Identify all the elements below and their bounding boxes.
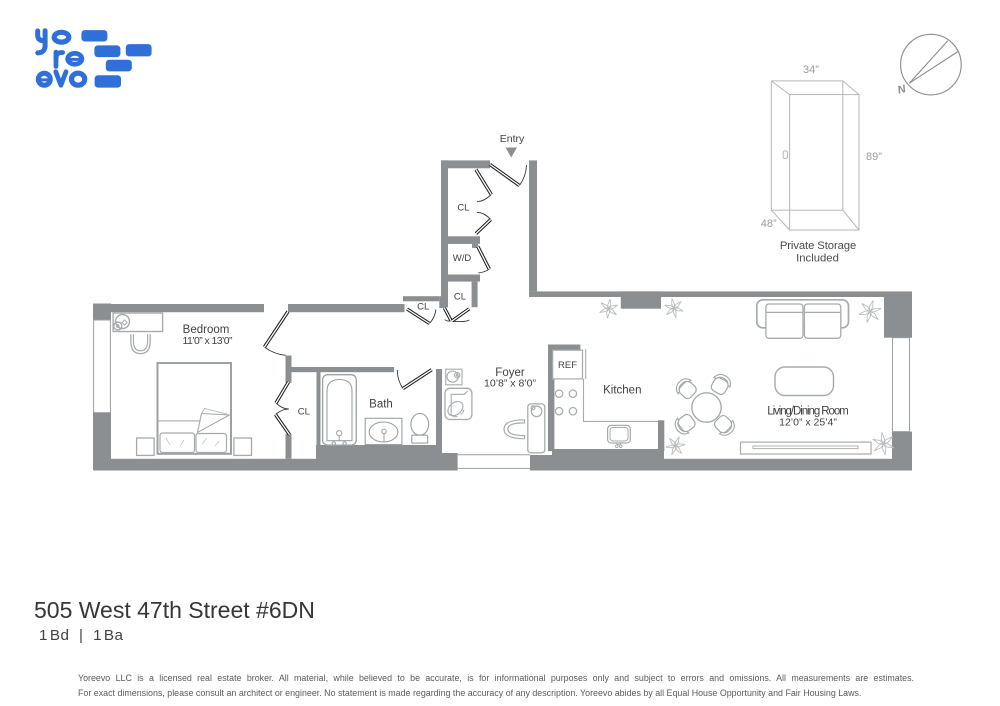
svg-text:Entry: Entry bbox=[500, 133, 525, 145]
svg-text:48”: 48” bbox=[761, 218, 777, 230]
svg-text:W/D: W/D bbox=[453, 253, 472, 264]
svg-text:Bath: Bath bbox=[369, 398, 393, 410]
svg-text:CL: CL bbox=[417, 301, 429, 312]
svg-text:Included: Included bbox=[796, 252, 839, 264]
svg-text:REF: REF bbox=[558, 360, 577, 371]
svg-text:12’0” x 25’4”: 12’0” x 25’4” bbox=[779, 417, 837, 429]
svg-text:11’0” x 13’0”: 11’0” x 13’0” bbox=[183, 335, 234, 347]
svg-text:34”: 34” bbox=[803, 64, 819, 76]
svg-text:CL: CL bbox=[457, 203, 469, 214]
svg-text:N: N bbox=[896, 83, 908, 97]
svg-text:10’8” x 8’0”: 10’8” x 8’0” bbox=[484, 378, 536, 390]
svg-text:Kitchen: Kitchen bbox=[603, 385, 641, 397]
svg-text:Private Storage: Private Storage bbox=[780, 240, 856, 252]
svg-text:89”: 89” bbox=[866, 151, 882, 163]
svg-text:CL: CL bbox=[298, 407, 310, 418]
svg-text:CL: CL bbox=[454, 292, 466, 303]
